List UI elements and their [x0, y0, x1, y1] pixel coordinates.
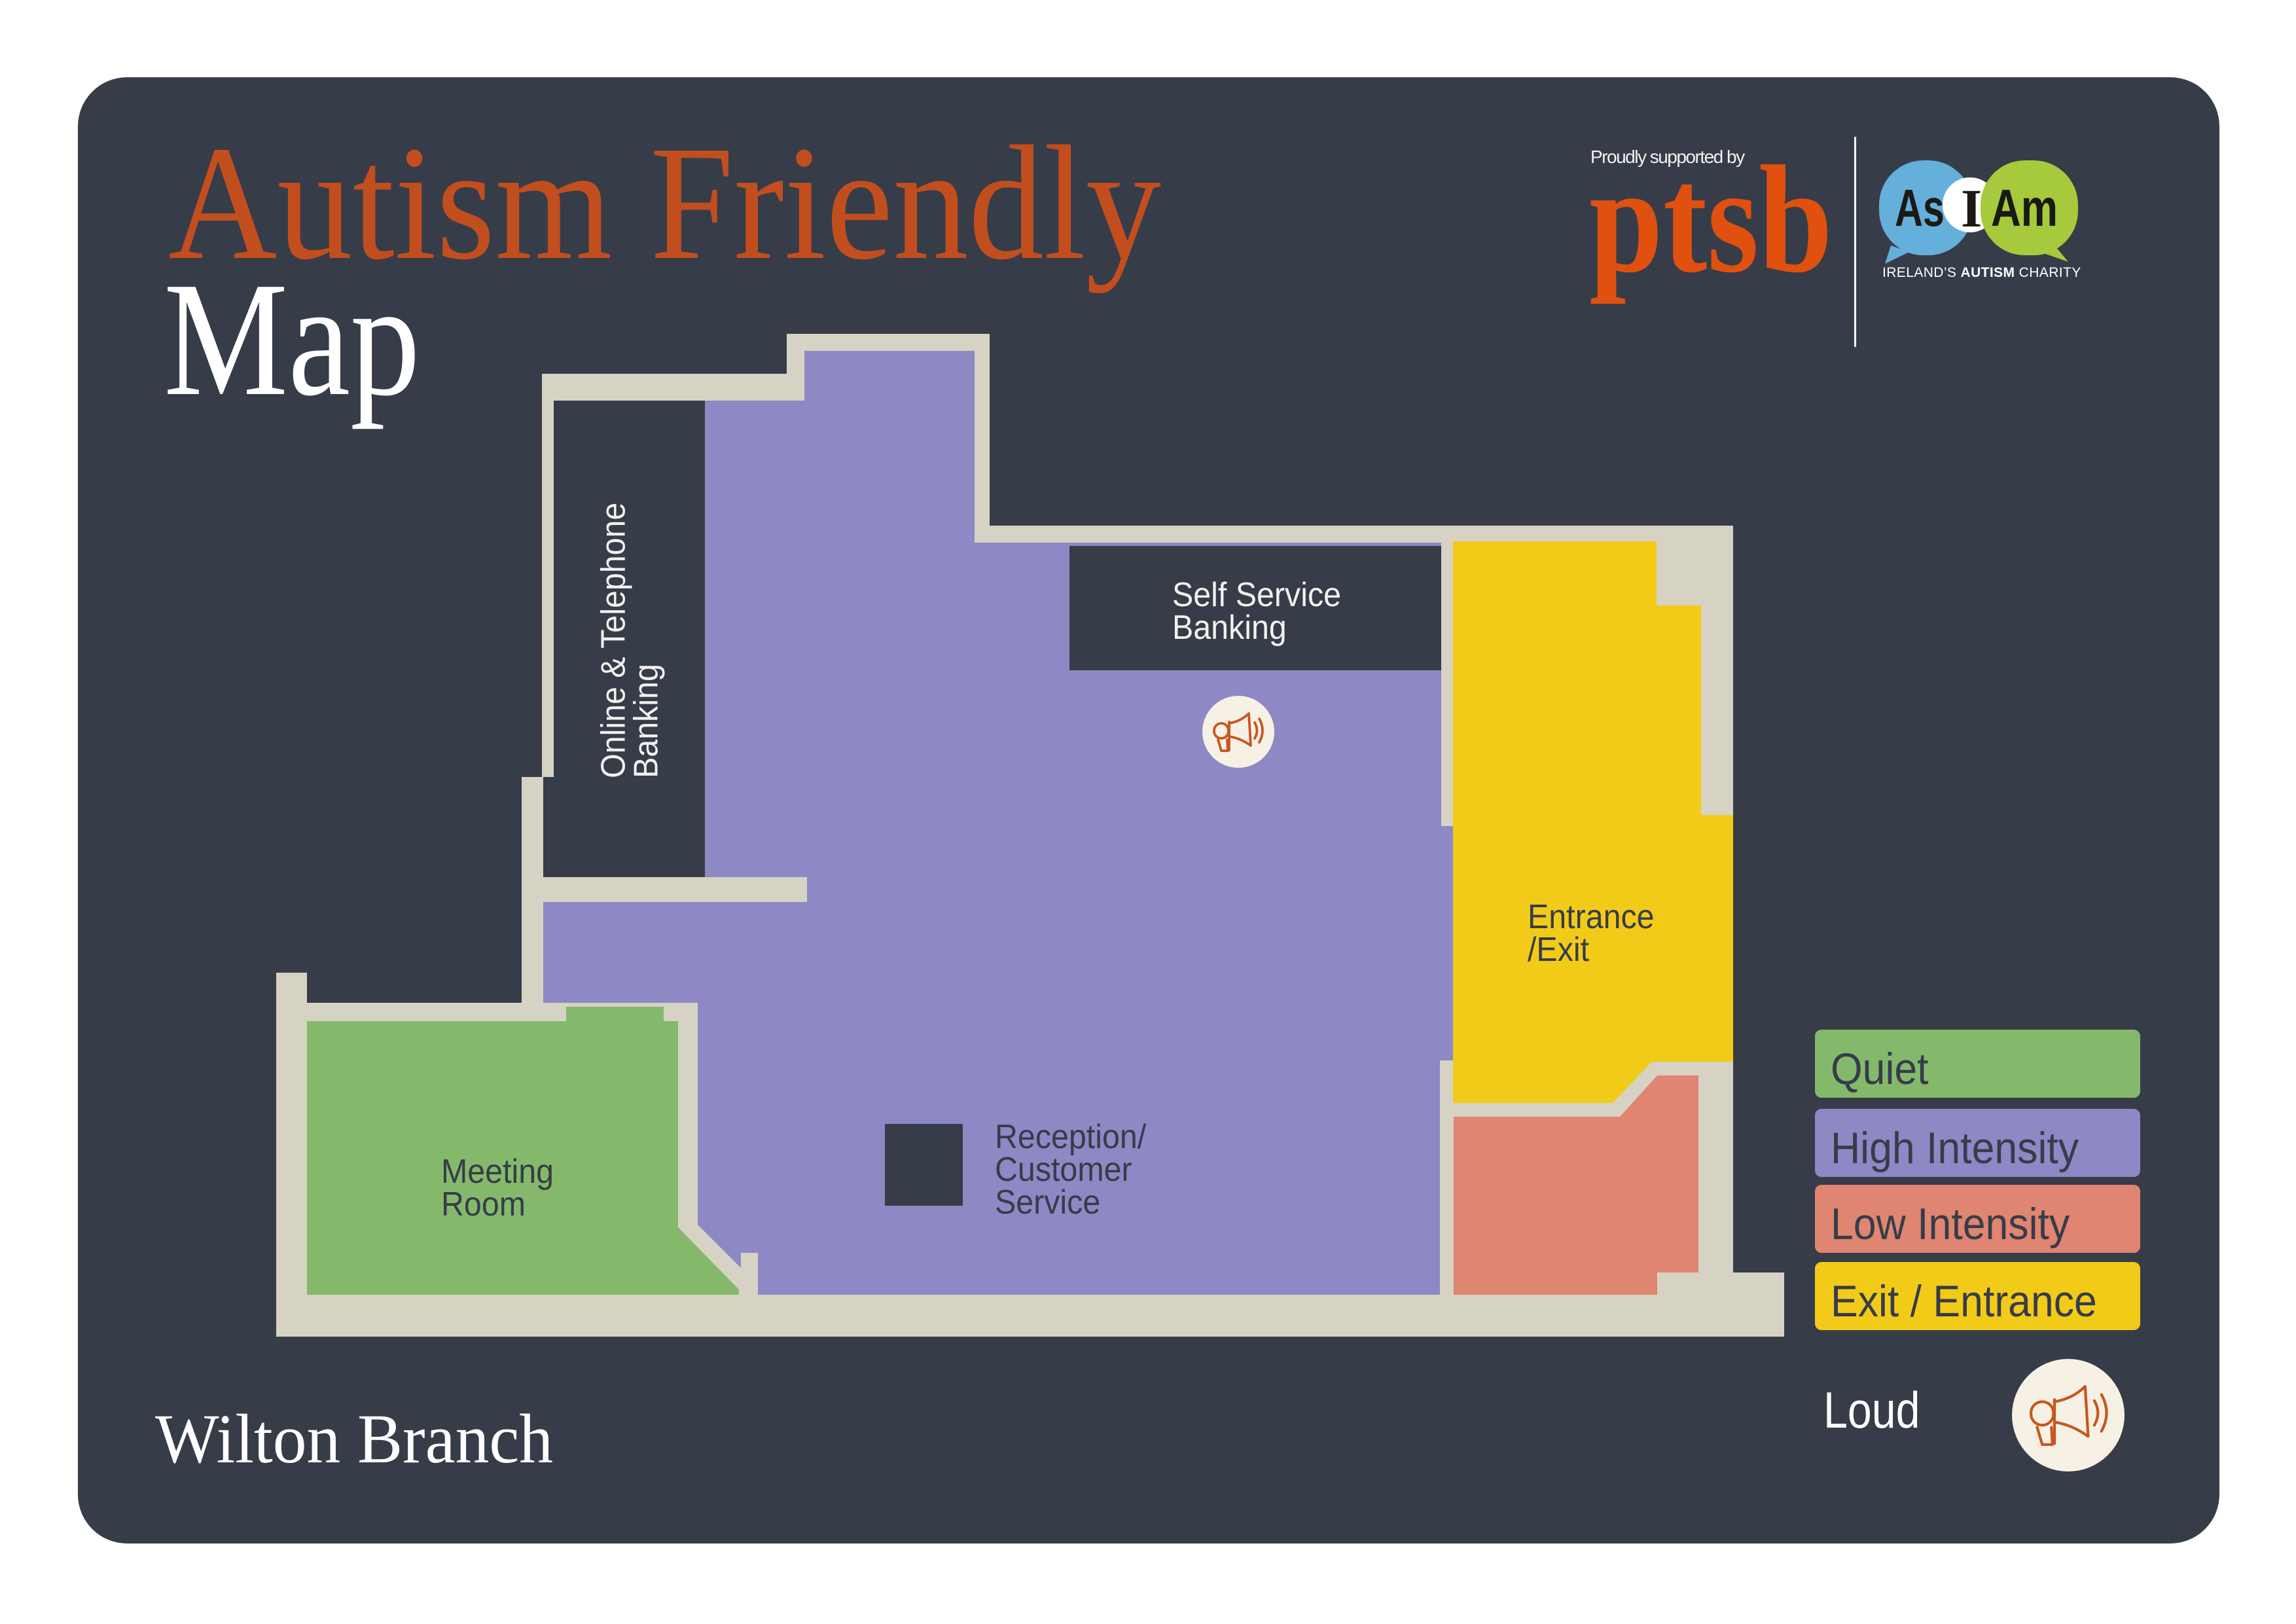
svg-text:As: As — [1895, 179, 1945, 237]
svg-text:Am: Am — [1991, 179, 2058, 237]
svg-text:Map: Map — [164, 249, 420, 430]
svg-text:I: I — [1961, 178, 1982, 238]
svg-text:Wilton Branch: Wilton Branch — [155, 1401, 553, 1478]
